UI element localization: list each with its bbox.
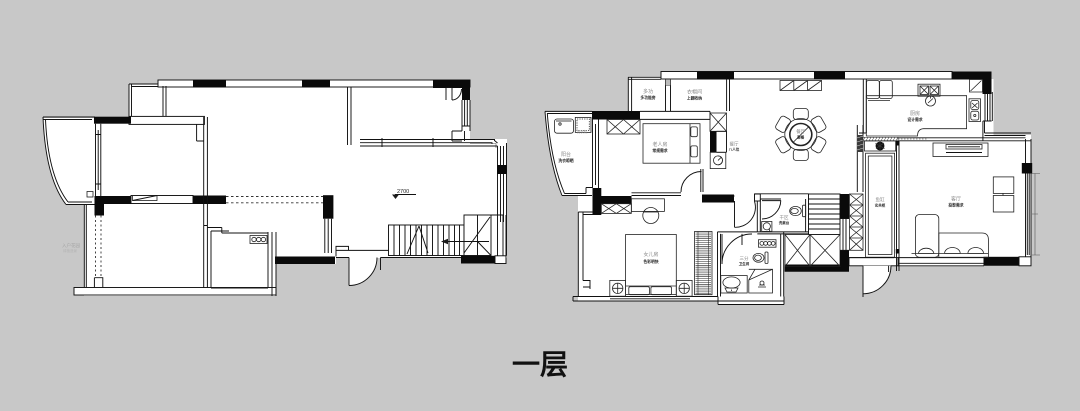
svg-text:洗衣晾晒: 洗衣晾晒	[558, 158, 573, 163]
svg-text:一层: 一层	[512, 349, 568, 380]
svg-text:投影需求: 投影需求	[948, 203, 963, 208]
svg-text:入户花园: 入户花园	[62, 242, 80, 249]
svg-text:老人房: 老人房	[652, 141, 667, 148]
svg-text:多功能房: 多功能房	[640, 95, 655, 100]
svg-text:三分: 三分	[740, 255, 749, 262]
svg-text:上翻收纳: 上翻收纳	[687, 96, 702, 101]
svg-text:衣帽间: 衣帽间	[687, 89, 702, 96]
svg-text:厨房: 厨房	[910, 110, 920, 117]
svg-text:色彩明快: 色彩明快	[643, 259, 658, 264]
svg-text:八人位: 八人位	[729, 147, 740, 152]
svg-text:2700: 2700	[397, 189, 409, 195]
svg-text:餐厅: 餐厅	[730, 141, 739, 148]
svg-text:洗漱台: 洗漱台	[779, 220, 790, 225]
svg-text:绿植造景: 绿植造景	[63, 248, 77, 253]
svg-text:女儿房: 女儿房	[643, 251, 658, 258]
svg-text:常规需求: 常规需求	[652, 148, 667, 153]
svg-text:卫生间: 卫生间	[739, 261, 750, 266]
svg-text:玄关柜: 玄关柜	[875, 203, 886, 208]
svg-text:洗衣机: 洗衣机	[577, 129, 588, 134]
svg-text:客厅: 客厅	[951, 196, 961, 203]
svg-text:阳台: 阳台	[561, 151, 571, 158]
svg-text:鱼缸: 鱼缸	[876, 196, 885, 202]
svg-text:设计需求: 设计需求	[907, 117, 922, 122]
svg-text:餐厅: 餐厅	[796, 128, 805, 135]
svg-text:聚餐: 聚餐	[796, 135, 805, 140]
svg-text:多功: 多功	[643, 88, 653, 95]
